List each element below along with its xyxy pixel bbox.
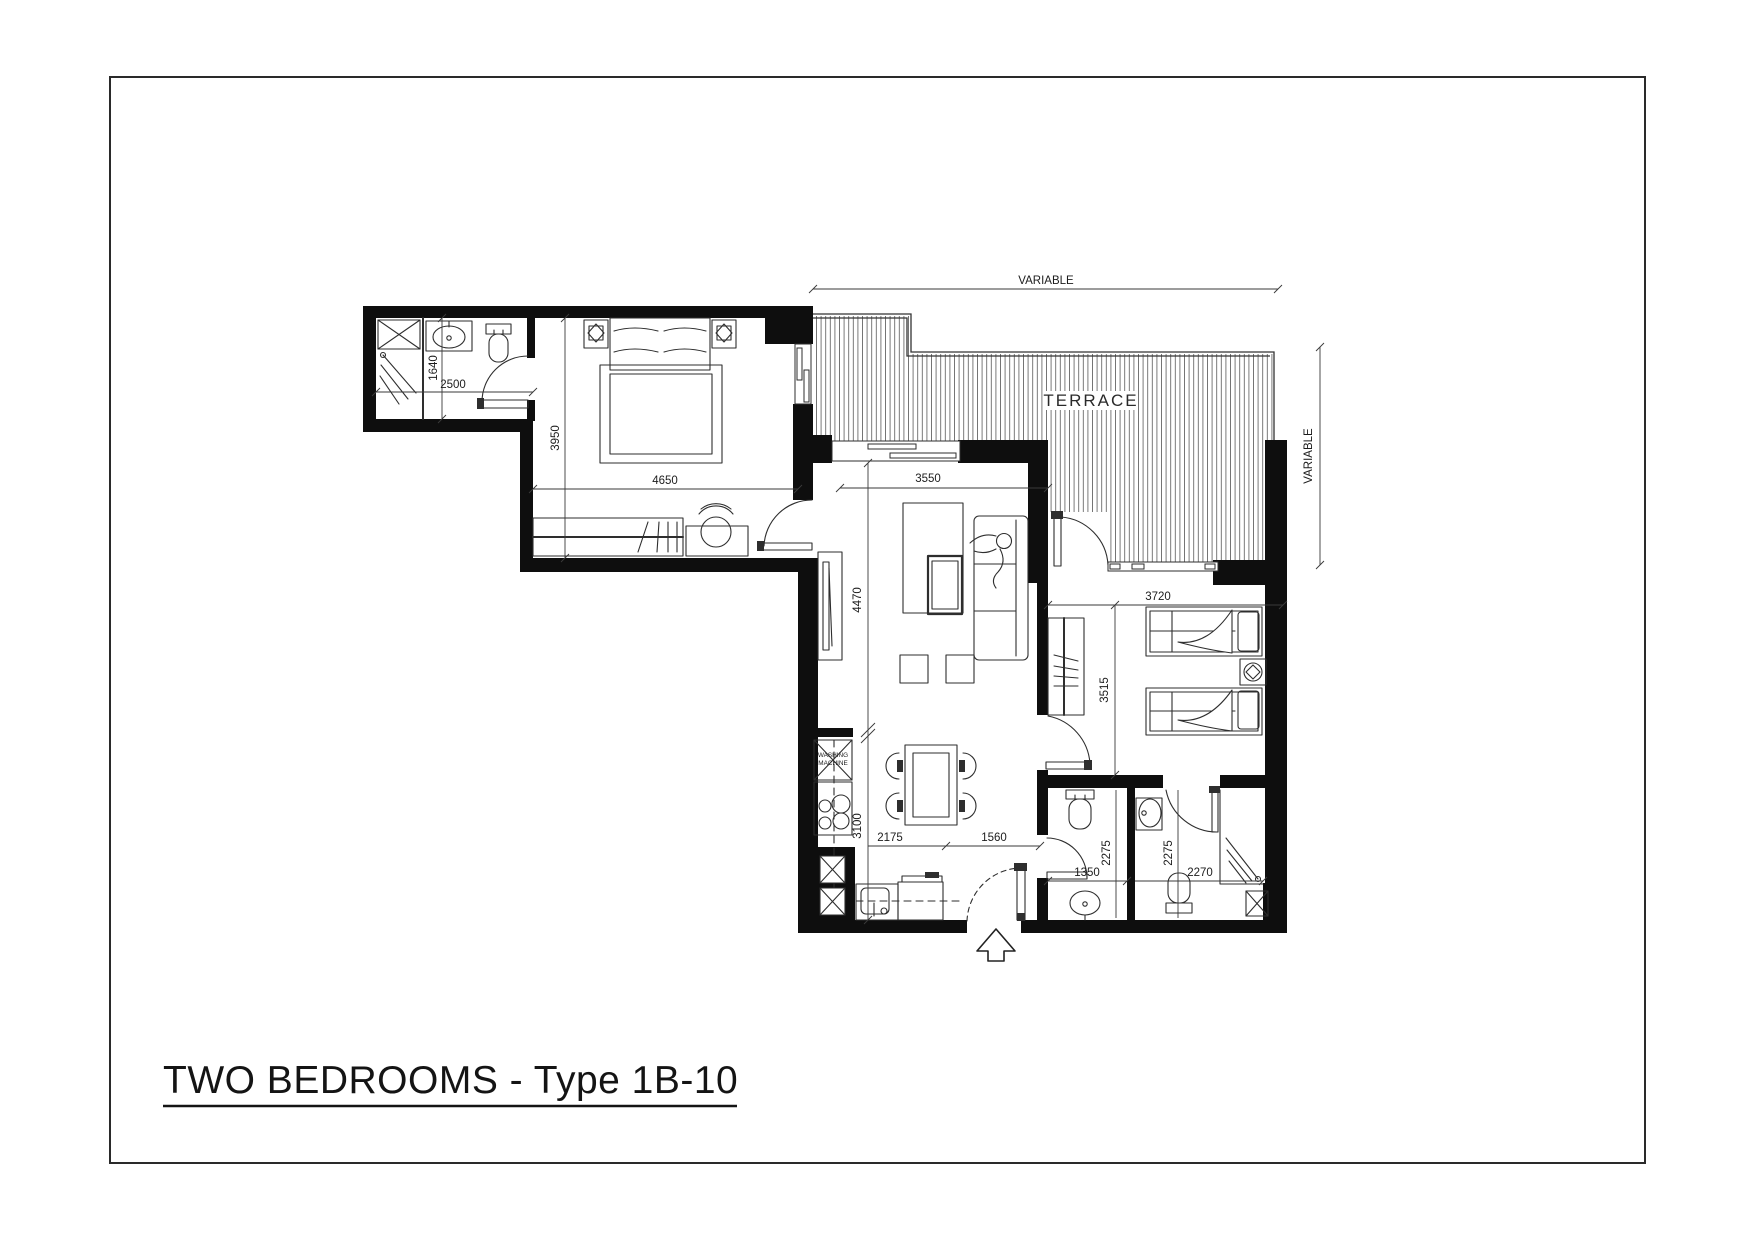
dim-bedroom2-width: 3720 [1145, 591, 1171, 603]
dim-master-bath-depth: 1640 [428, 355, 440, 381]
washing-machine-label-1: WASHING [818, 752, 848, 759]
dim-entry-width: 1560 [981, 832, 1007, 844]
bedroom2-window [1108, 562, 1218, 571]
dim-bath1-width: 1350 [1074, 867, 1100, 879]
plan-title: TWO BEDROOMS - Type 1B-10 [163, 1059, 738, 1102]
dim-kitchen-depth: 3100 [852, 813, 864, 839]
dim-bath1-depth: 2275 [1101, 840, 1113, 866]
sheet-border [110, 77, 1645, 1163]
washing-machine-label-2: MACHINE [818, 760, 847, 767]
dim-terrace-width: VARIABLE [1018, 275, 1074, 287]
dim-master-bath-width: 2500 [440, 379, 466, 391]
dim-bath2-depth: 2275 [1163, 840, 1175, 866]
dim-living-width: 3550 [915, 473, 941, 485]
title-block: TWO BEDROOMS - Type 1B-10 [163, 1059, 738, 1106]
terrace-label: TERRACE [1043, 391, 1138, 410]
dim-master-bedroom-depth: 3950 [550, 425, 562, 451]
dim-living-depth: 4470 [852, 587, 864, 613]
dim-bedroom2-depth: 3515 [1099, 677, 1111, 703]
dim-dining-width: 2175 [877, 832, 903, 844]
drawing-sheet: TERRACE [0, 0, 1755, 1240]
dim-bath2-width: 2270 [1187, 867, 1213, 879]
dim-master-bedroom-width: 4650 [652, 475, 678, 487]
dim-terrace-depth: VARIABLE [1303, 428, 1315, 484]
